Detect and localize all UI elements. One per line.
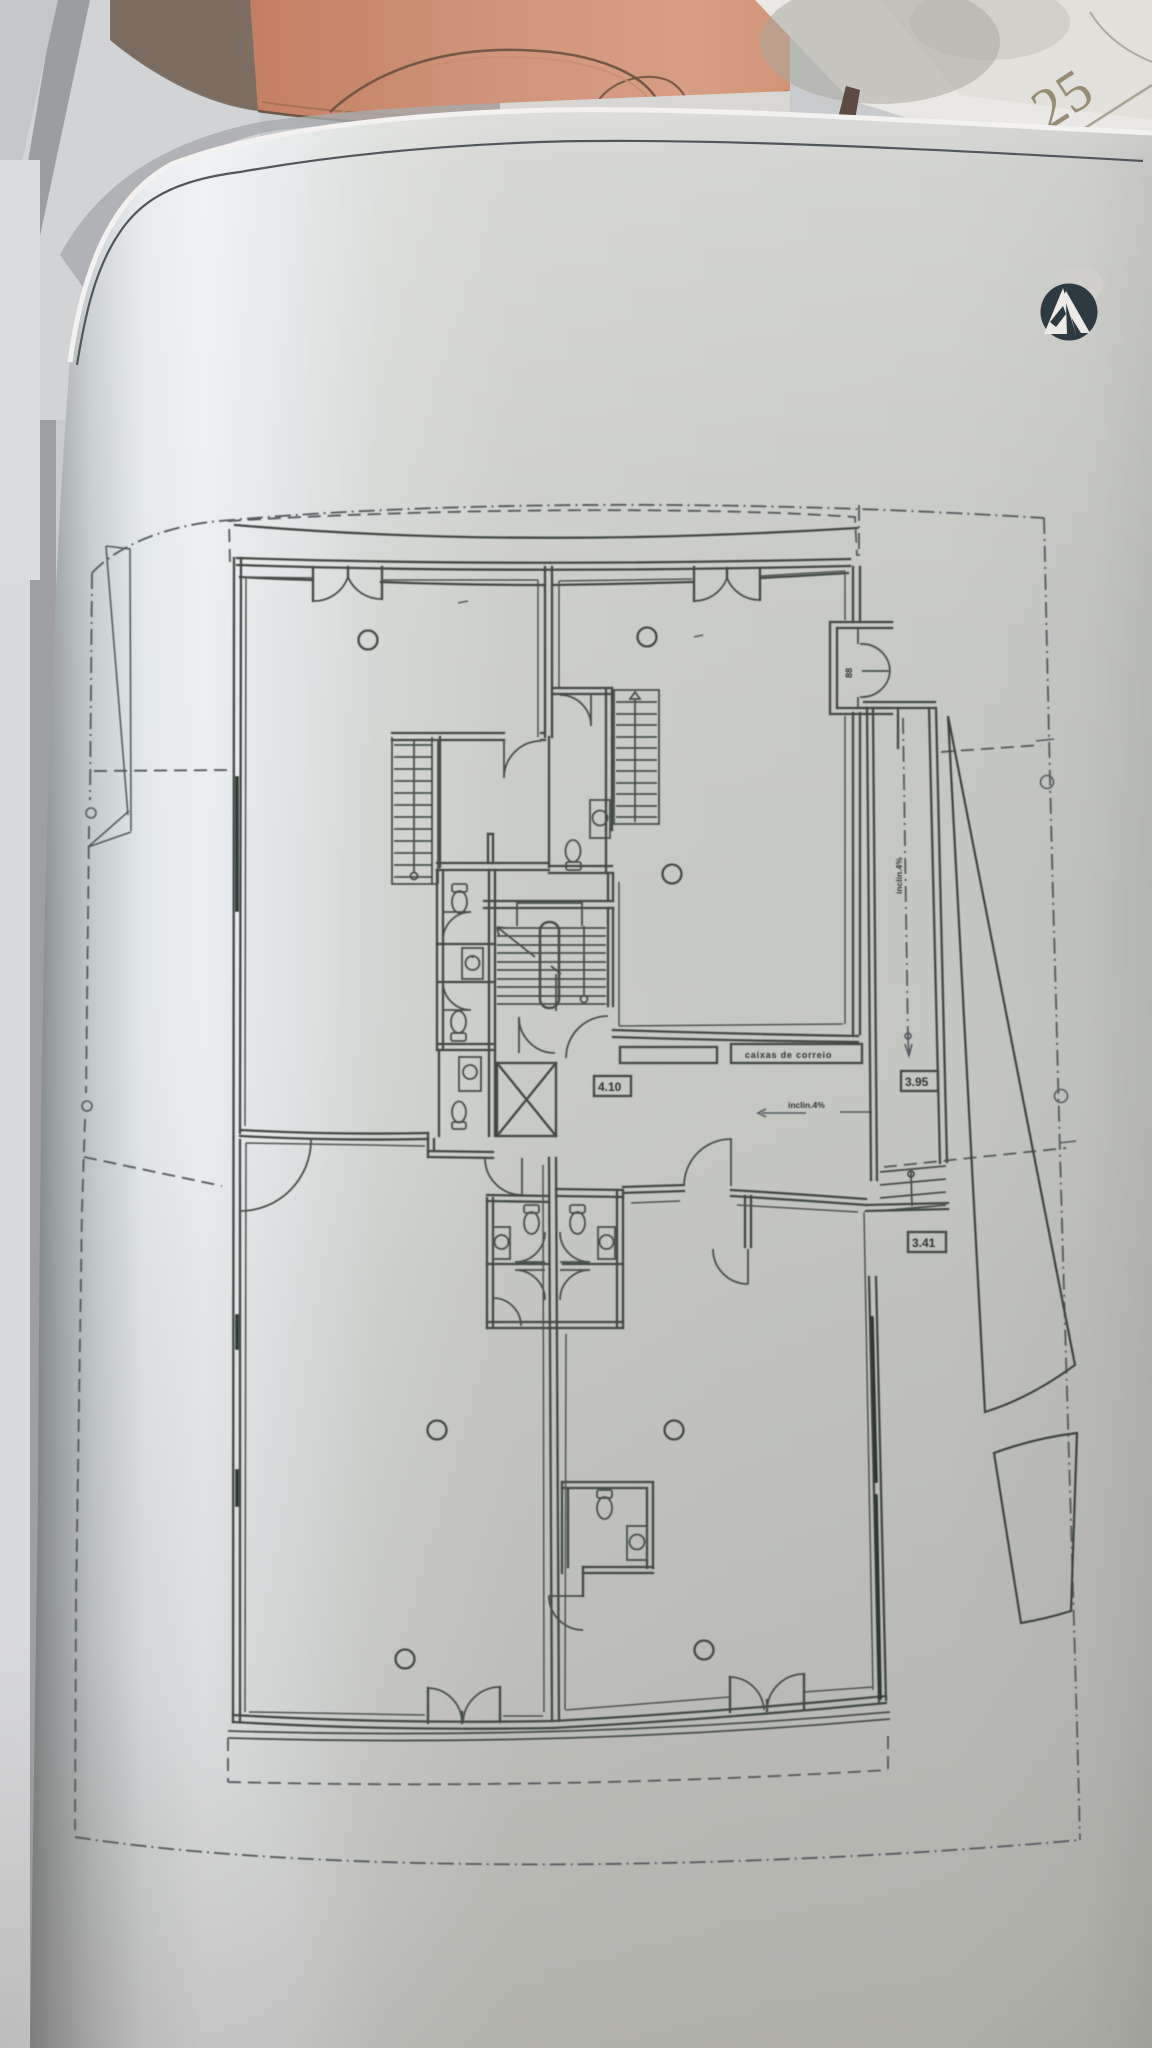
svg-text:3.41: 3.41 bbox=[912, 1236, 936, 1250]
svg-text:88: 88 bbox=[844, 668, 854, 678]
svg-text:inclin.4%: inclin.4% bbox=[788, 1100, 825, 1110]
svg-text:4.10: 4.10 bbox=[598, 1080, 622, 1094]
svg-text:3.95: 3.95 bbox=[905, 1075, 929, 1089]
svg-text:inclin.4%: inclin.4% bbox=[894, 857, 904, 894]
svg-text:caixas de correio: caixas de correio bbox=[745, 1050, 832, 1060]
